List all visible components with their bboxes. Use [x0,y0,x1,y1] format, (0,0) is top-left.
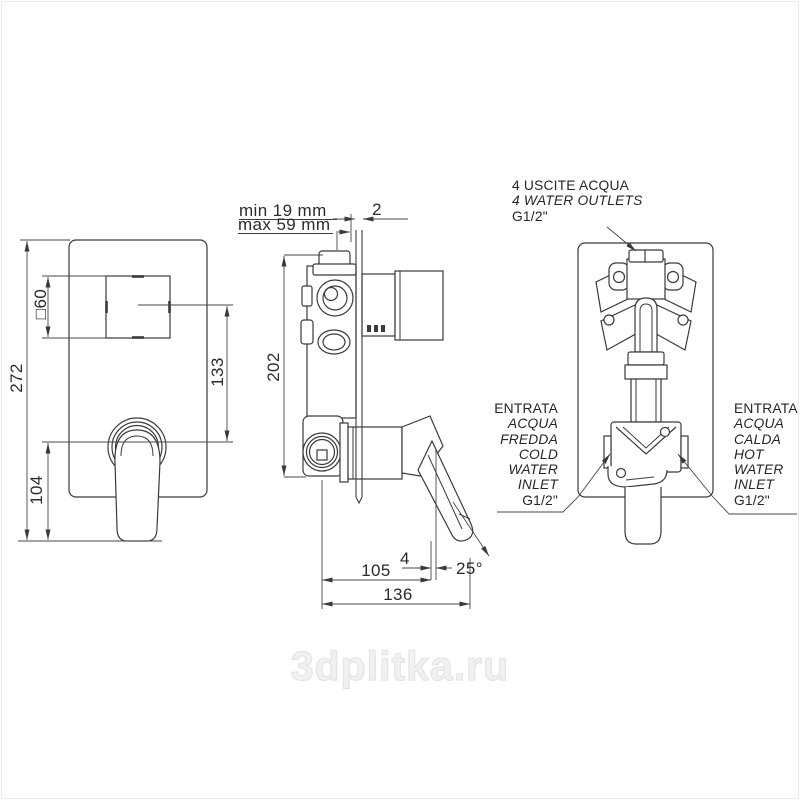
dim-depth-max: max 59 mm [238,217,333,234]
side-diverter-knob [395,271,443,340]
side-cartridge-flange [340,423,348,482]
dim-total-depth: 136 [375,585,421,605]
back-spout [625,487,661,544]
back-side-tab-left [604,436,611,468]
back-dome-column [635,298,657,352]
front-diverter-square [106,276,170,338]
technical-drawing-canvas: 272 □60 104 133 202 min 19 mm max 59 mm … [0,0,800,800]
dim-front-handle-overhang: 104 [28,455,46,525]
side-spout-port-square [317,450,327,460]
front-view [69,240,207,541]
hot-inlet-label: ENTRATA ACQUA CALDA HOT WATER INLET G1/2… [734,401,800,508]
side-diverter-circle [317,280,353,316]
side-left-lug [301,320,313,344]
dim-side-body-height: 202 [265,332,283,402]
outlets-label-line3: G1/2" [512,209,643,224]
cold-inlet-label: ENTRATA ACQUA FREDDA COLD WATER INLET G1… [470,401,558,508]
dim-front-handle-offset: 133 [209,337,227,407]
side-left-port [302,286,312,306]
back-view [578,243,713,544]
back-collar [628,352,664,365]
back-block [625,365,667,379]
dim-depth-to-lever: 105 [353,561,399,581]
back-side-tab-right [681,436,688,468]
dim-front-total-height: 272 [8,343,26,413]
outlets-label: 4 USCITE ACQUA 4 WATER OUTLETS G1/2" [512,178,643,224]
dim-lever-angle: 25° [456,559,483,579]
back-body [627,259,665,299]
side-lever [418,441,473,541]
outlets-label-line2: 4 WATER OUTLETS [512,193,643,208]
outlets-label-line1: 4 USCITE ACQUA [512,178,643,193]
back-top-cap [629,250,663,262]
side-view [301,230,473,541]
side-top-collar [313,264,356,275]
dim-lever-tip-offset: 4 [400,549,410,569]
back-valve-box [611,422,681,472]
dim-front-square-plate: □60 [32,269,50,339]
watermark: 3dplitka.ru [278,643,522,690]
side-stem [362,274,395,336]
dim-plate-thickness: 2 [372,200,382,220]
thread-marks [367,325,385,332]
